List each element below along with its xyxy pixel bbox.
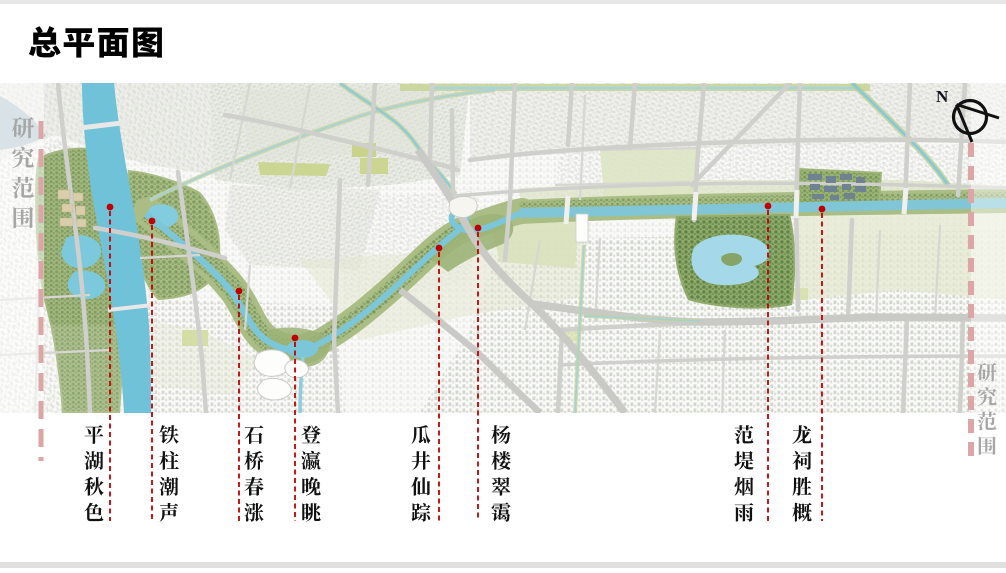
svg-text:N: N bbox=[936, 87, 949, 106]
